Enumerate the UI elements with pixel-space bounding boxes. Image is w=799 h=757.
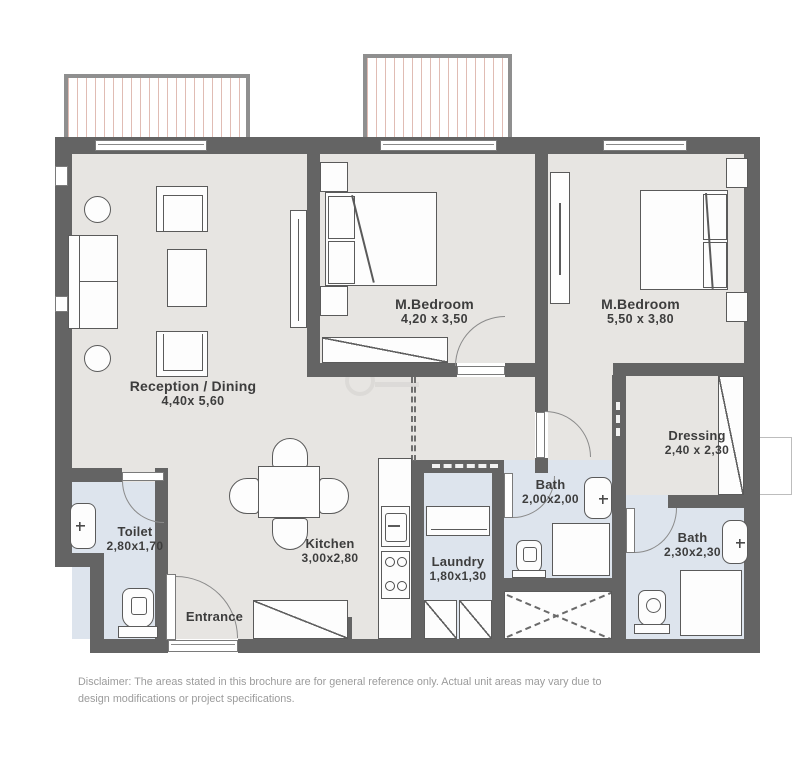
wall-bedroom-right-south <box>613 363 744 376</box>
kitchen-base-cabinet <box>253 600 348 639</box>
label-bath-middle: Bath 2,00x2,00 <box>498 477 603 506</box>
wall-right <box>744 137 760 653</box>
bed-left <box>325 192 437 286</box>
pillow <box>328 196 355 239</box>
room-name: Reception / Dining <box>88 378 298 394</box>
burner <box>397 557 407 567</box>
sofa-cushion <box>79 281 117 282</box>
bath-right-door-leaf <box>626 508 635 553</box>
balcony-middle <box>363 54 512 142</box>
label-kitchen: Kitchen 3,00x2,80 <box>275 536 385 565</box>
pillow <box>328 241 355 284</box>
room-name: M.Bedroom <box>352 296 517 312</box>
kitchen-sink-basin <box>385 513 407 542</box>
room-dims: 2,00x2,00 <box>498 492 603 506</box>
label-laundry: Laundry 1,80x1,30 <box>408 554 508 583</box>
window-bedroom-right <box>603 140 687 151</box>
wardrobe-bedroom-right-wall <box>550 172 570 304</box>
room-name: Toilet <box>80 524 190 539</box>
room-dims: 4,40x 5,60 <box>88 394 298 408</box>
kitchen-sink <box>381 506 410 547</box>
nightstand <box>320 286 348 316</box>
kitchen-faucet <box>388 525 400 527</box>
room-dims: 1,80x1,30 <box>408 569 508 583</box>
room-name: Bath <box>498 477 603 492</box>
bed-right <box>640 190 728 290</box>
label-reception: Reception / Dining 4,40x 5,60 <box>88 378 298 408</box>
room-dims: 2,80x1,70 <box>80 539 190 553</box>
threshold-line <box>171 644 235 645</box>
window-glass-line <box>383 144 494 145</box>
laundry-cabinet-right <box>459 600 492 639</box>
room-dims: 3,00x2,80 <box>275 551 385 565</box>
opening-dashed-hallway <box>411 377 416 461</box>
side-table-bottom <box>84 345 111 372</box>
wall-toilet-north-a <box>55 468 122 482</box>
room-name: Laundry <box>408 554 508 569</box>
wall-bath-right-west <box>612 591 626 639</box>
wall-bedroom-left-west <box>307 154 320 377</box>
nightstand <box>320 162 348 192</box>
entrance-threshold <box>168 640 238 652</box>
window-bedroom-left <box>380 140 497 151</box>
nightstand <box>726 158 748 188</box>
shower-bath-right <box>680 570 742 636</box>
dining-chair-left <box>229 478 259 514</box>
toilet-bowl <box>131 597 147 615</box>
room-name: M.Bedroom <box>558 296 723 312</box>
washer-line <box>431 529 487 530</box>
room-dims: 4,20 x 3,50 <box>352 312 517 326</box>
wall-left-step-v <box>90 553 104 653</box>
toilet-fixture <box>516 540 542 574</box>
sofa <box>68 235 118 329</box>
label-dressing: Dressing 2,40 x 2,30 <box>637 428 757 457</box>
sofa-back <box>69 236 80 328</box>
wall-bottom-a <box>90 639 168 653</box>
floorplan: Reception / Dining 4,40x 5,60 M.Bedroom … <box>0 0 799 757</box>
window-left-wall-upper <box>55 166 68 186</box>
toilet-bowl <box>523 547 537 562</box>
wall-bottom-b <box>238 639 760 653</box>
coffee-table <box>167 249 207 307</box>
tv-unit <box>290 210 307 328</box>
toilet-base <box>512 570 546 578</box>
disclaimer-text: Disclaimer: The areas stated in this bro… <box>78 674 602 707</box>
window-glass-line <box>98 144 204 145</box>
room-dims: 5,50 x 3,80 <box>558 312 723 326</box>
shaft-x-line <box>507 594 612 639</box>
dining-chair-top <box>272 438 308 468</box>
toilet-fixture <box>638 590 666 626</box>
label-entrance: Entrance <box>172 609 257 624</box>
nightstand <box>726 292 748 322</box>
wall-divider <box>535 154 548 412</box>
wall-bedroom-left-south-a <box>307 363 457 377</box>
room-name: Bath <box>640 530 745 545</box>
armchair-bottom <box>156 331 208 377</box>
window-left-wall-lower <box>55 296 68 312</box>
armchair-seat <box>163 195 203 232</box>
room-name: Entrance <box>172 609 257 624</box>
burner <box>385 581 395 591</box>
shaft <box>504 591 612 639</box>
opening-dashed-bath-middle <box>432 464 498 468</box>
corridor-door-leaf <box>536 412 545 458</box>
label-toilet: Toilet 2,80x1,70 <box>80 524 190 553</box>
laundry-cabinet-left <box>424 600 457 639</box>
toilet-fixture <box>122 588 154 628</box>
window-glass-line <box>606 144 684 145</box>
balcony-left <box>64 74 250 142</box>
armchair-top <box>156 186 208 232</box>
room-name: Dressing <box>637 428 757 443</box>
tv-unit-line <box>298 219 299 321</box>
bedroom-left-door-leaf <box>457 366 505 375</box>
armchair-seat <box>163 334 203 371</box>
opening-dashed-dressing <box>616 402 620 436</box>
toilet-base <box>634 624 670 634</box>
label-bedroom-right: M.Bedroom 5,50 x 3,80 <box>558 296 723 326</box>
wall-bath-middle-south <box>492 578 626 591</box>
wardrobe-handle <box>559 203 561 275</box>
burner <box>385 557 395 567</box>
bed-throw-line <box>352 195 375 283</box>
room-dims: 2,30x2,30 <box>640 545 745 559</box>
dining-table <box>258 466 320 518</box>
stove <box>381 551 410 599</box>
side-table-top <box>84 196 111 223</box>
burner <box>397 581 407 591</box>
toilet-bowl <box>646 598 661 613</box>
window-reception <box>95 140 207 151</box>
wall-bath-right-north <box>668 495 744 508</box>
label-bedroom-left: M.Bedroom 4,20 x 3,50 <box>352 296 517 326</box>
washing-machine <box>426 506 490 536</box>
entrance-door-leaf <box>166 574 176 640</box>
wall-left <box>55 137 72 567</box>
toilet-door-leaf <box>122 472 164 481</box>
pillow <box>703 242 727 288</box>
label-bath-right: Bath 2,30x2,30 <box>640 530 745 559</box>
shower-bath-middle <box>552 523 610 576</box>
wall-bedroom-left-south-b <box>505 363 535 377</box>
wardrobe-bedroom-left <box>322 337 448 363</box>
toilet-base <box>118 626 158 638</box>
room-name: Kitchen <box>275 536 385 551</box>
room-dims: 2,40 x 2,30 <box>637 443 757 457</box>
wall-divider-stub <box>535 458 548 473</box>
